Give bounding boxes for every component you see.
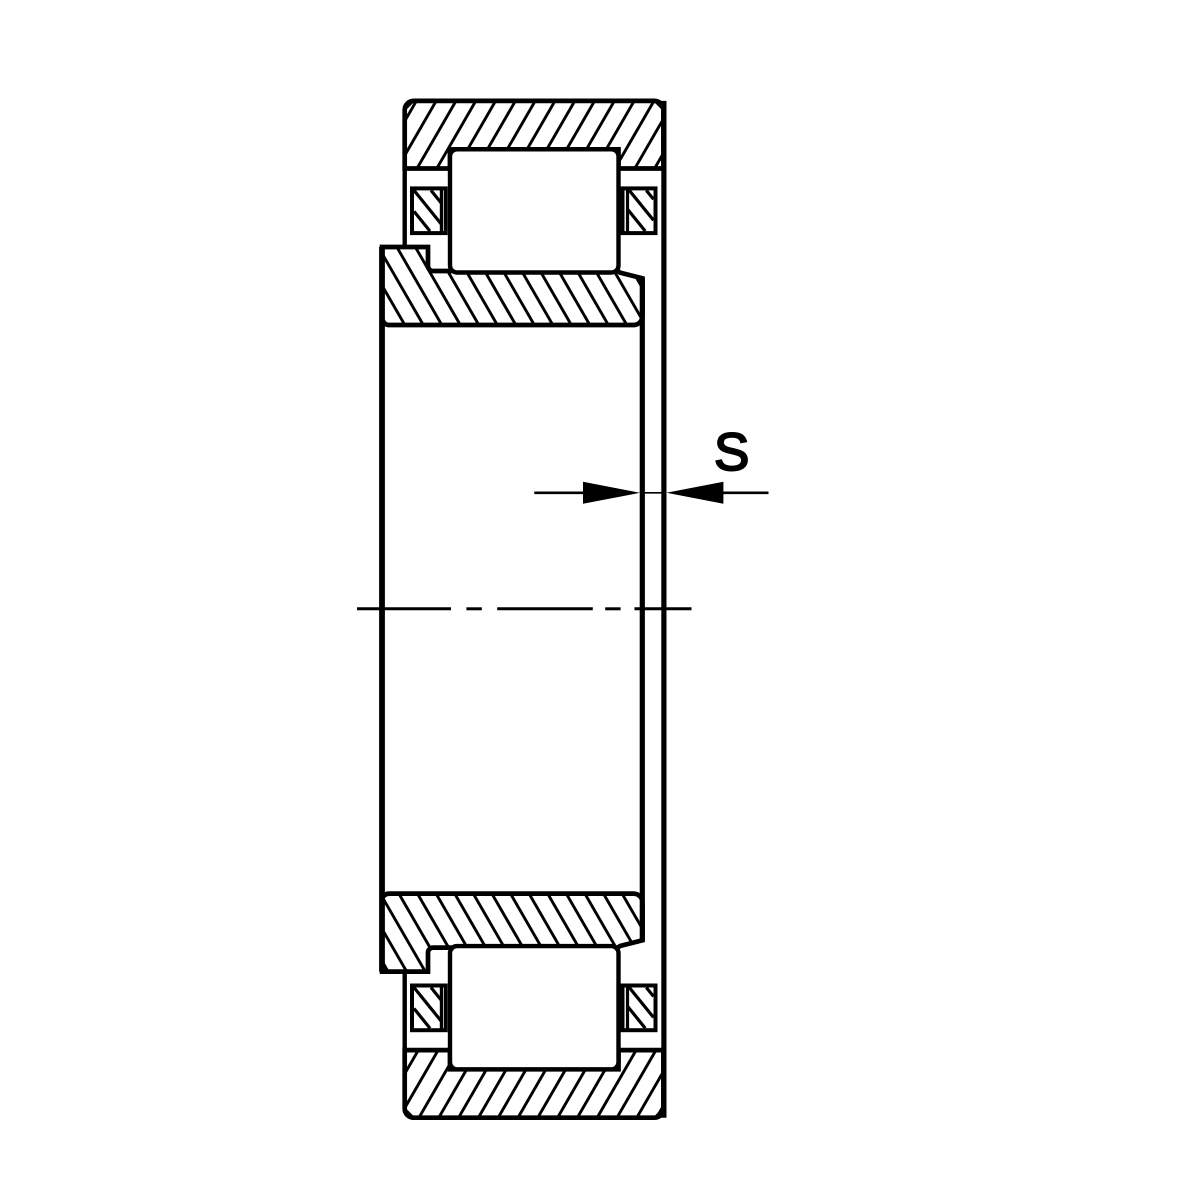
svg-text:S: S	[714, 423, 749, 482]
